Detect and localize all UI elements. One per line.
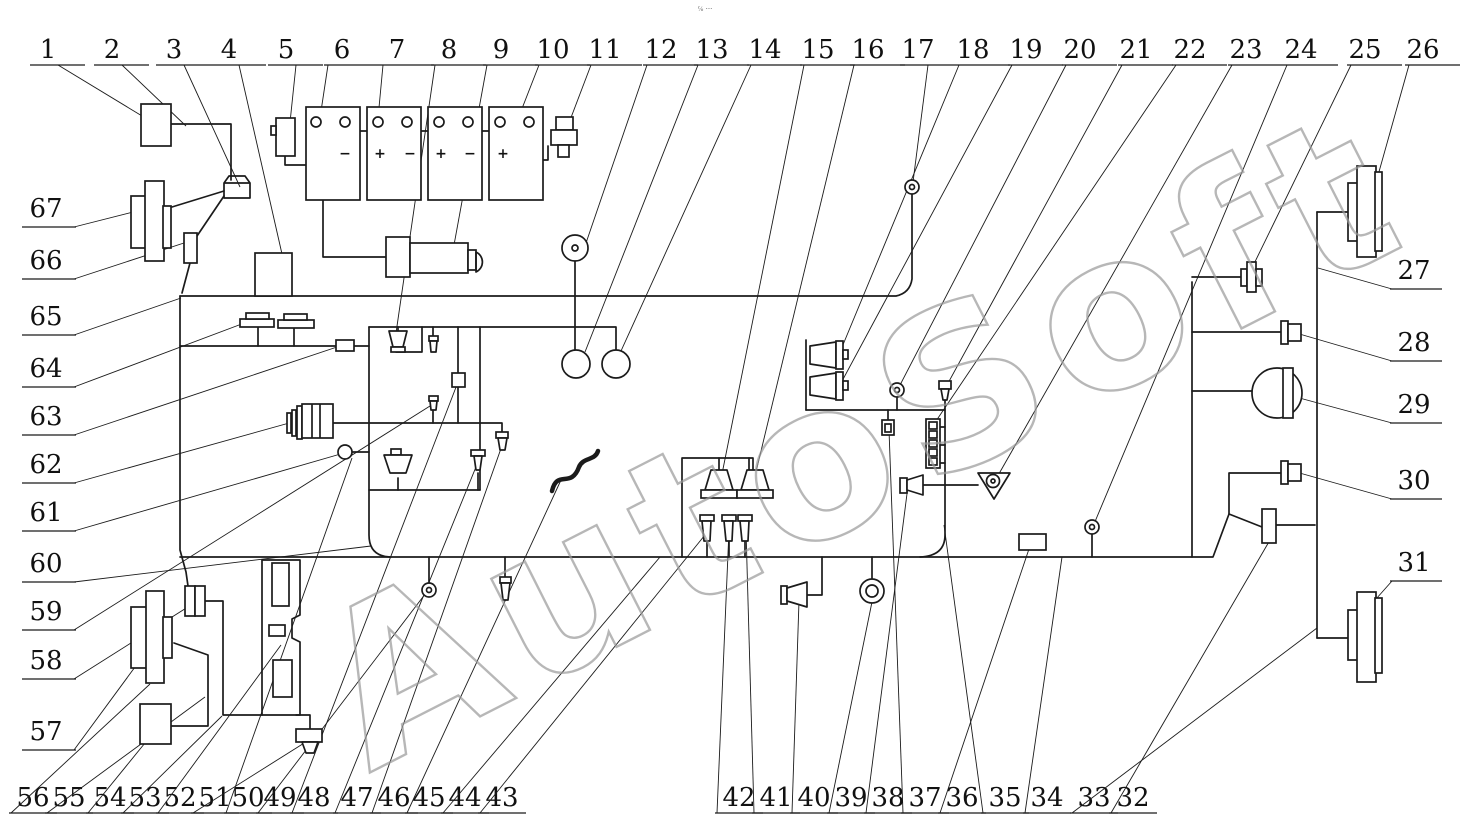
callout-number-51: 51 xyxy=(198,783,231,813)
leader-line-29 xyxy=(1292,396,1392,423)
callout-number-13: 13 xyxy=(695,35,728,65)
speaker-31 xyxy=(1348,592,1382,682)
wire-control-box xyxy=(171,124,231,180)
callout-number-29: 29 xyxy=(1397,390,1430,420)
box-54 xyxy=(140,704,171,744)
callout-number-5: 5 xyxy=(278,35,295,65)
leader-line-14 xyxy=(621,65,751,351)
callout-number-63: 63 xyxy=(29,402,62,432)
callout-number-16: 16 xyxy=(851,35,884,65)
callout-number-38: 38 xyxy=(871,783,904,813)
wire-horn51 xyxy=(296,715,310,729)
callout-number-64: 64 xyxy=(29,354,62,384)
battery-polarity-label: − xyxy=(404,146,416,162)
relay-box-36 xyxy=(1019,534,1046,550)
callout-number-66: 66 xyxy=(29,246,62,276)
plug-46 xyxy=(496,432,508,450)
wire-speaker57 xyxy=(205,601,262,715)
battery-polarity-label: − xyxy=(464,146,476,162)
horn-button-12 xyxy=(562,235,588,261)
callout-number-49: 49 xyxy=(263,783,296,813)
wiper-motor-62 xyxy=(287,404,333,439)
gauge-circle-13 xyxy=(562,350,590,378)
leader-line-1 xyxy=(58,65,152,122)
battery-1: − xyxy=(306,107,360,200)
leader-line-32 xyxy=(1111,540,1270,813)
leader-line-33 xyxy=(1072,628,1317,813)
leader-line-4 xyxy=(239,65,282,254)
leader-line-40 xyxy=(792,601,799,813)
callout-number-53: 53 xyxy=(128,783,161,813)
callout-number-25: 25 xyxy=(1348,35,1381,65)
callout-number-57: 57 xyxy=(29,717,62,747)
battery-4: + xyxy=(489,107,543,200)
callout-number-34: 34 xyxy=(1030,783,1063,813)
callout-number-62: 62 xyxy=(29,450,62,480)
leader-line-36 xyxy=(940,543,1031,813)
battery-polarity-label: + xyxy=(497,146,509,162)
header-artifact-text: ℅ ··· xyxy=(698,5,713,13)
callout-number-28: 28 xyxy=(1397,328,1430,358)
callout-number-59: 59 xyxy=(29,597,62,627)
leader-line-13 xyxy=(585,65,698,352)
callout-number-36: 36 xyxy=(945,783,978,813)
wiring-diagram: ℅ ···12345678910111213141516171819202122… xyxy=(0,0,1460,836)
diagram-page: ℅ ···12345678910111213141516171819202122… xyxy=(0,0,1460,836)
wire-speaker-cap xyxy=(172,191,224,207)
leader-line-35 xyxy=(944,525,983,813)
callout-number-37: 37 xyxy=(908,783,941,813)
flasher-relay-52 xyxy=(262,560,300,715)
wire-cap-connector xyxy=(197,196,224,236)
connector-66 xyxy=(184,233,197,263)
callout-number-58: 58 xyxy=(29,646,62,676)
fuse-holder-64 xyxy=(240,313,274,327)
callout-number-10: 10 xyxy=(536,35,569,65)
callout-number-48: 48 xyxy=(297,783,330,813)
callout-number-55: 55 xyxy=(52,783,85,813)
callout-number-18: 18 xyxy=(956,35,989,65)
connector-11 xyxy=(551,117,577,157)
relay-square-48 xyxy=(452,373,465,387)
callout-number-8: 8 xyxy=(441,35,458,65)
horn-51 xyxy=(296,729,322,753)
leader-line-17 xyxy=(913,65,928,182)
callout-number-40: 40 xyxy=(797,783,830,813)
callout-number-19: 19 xyxy=(1009,35,1042,65)
callout-number-2: 2 xyxy=(104,35,121,65)
leader-line-62 xyxy=(74,420,300,483)
callout-number-31: 31 xyxy=(1397,548,1430,578)
relay-cap-3 xyxy=(224,176,250,198)
callout-number-20: 20 xyxy=(1063,35,1096,65)
callout-number-21: 21 xyxy=(1119,35,1152,65)
callout-number-17: 17 xyxy=(901,35,934,65)
callout-number-15: 15 xyxy=(801,35,834,65)
callout-number-67: 67 xyxy=(29,194,62,224)
fuse-holder-63 xyxy=(278,314,314,328)
switch-5 xyxy=(271,118,295,156)
callout-number-11: 11 xyxy=(588,35,621,65)
callout-number-7: 7 xyxy=(389,35,406,65)
starter-motor-9 xyxy=(386,237,482,277)
callout-number-24: 24 xyxy=(1284,35,1317,65)
battery-2: +− xyxy=(367,107,421,200)
leader-line-34 xyxy=(1025,557,1062,813)
gauge-circle-14 xyxy=(602,350,630,378)
left-edge xyxy=(180,296,188,586)
callout-number-56: 56 xyxy=(16,783,49,813)
battery-polarity-label: + xyxy=(374,146,386,162)
connector-58 xyxy=(185,586,205,616)
callout-number-32: 32 xyxy=(1116,783,1149,813)
callout-number-35: 35 xyxy=(988,783,1021,813)
bus-right-branch xyxy=(1229,514,1262,527)
wire-battery1-starter xyxy=(323,200,386,257)
relay-63b xyxy=(336,340,354,351)
flat-lamp-50 xyxy=(384,449,412,473)
battery-polarity-label: + xyxy=(435,146,447,162)
leader-line-30 xyxy=(1296,472,1392,499)
callout-number-43: 43 xyxy=(485,783,518,813)
callout-number-39: 39 xyxy=(834,783,867,813)
callout-number-6: 6 xyxy=(334,35,351,65)
leader-line-39 xyxy=(829,597,873,813)
speaker-57 xyxy=(131,591,172,683)
callout-number-42: 42 xyxy=(722,783,755,813)
clip-circle-60 xyxy=(338,445,352,459)
callout-number-41: 41 xyxy=(759,783,792,813)
battery-polarity-label: − xyxy=(339,146,351,162)
callout-number-14: 14 xyxy=(748,35,781,65)
connector-32 xyxy=(1262,509,1276,543)
wire-conn66-corner xyxy=(182,263,190,293)
callout-number-60: 60 xyxy=(29,549,62,579)
callout-number-22: 22 xyxy=(1173,35,1206,65)
callout-number-61: 61 xyxy=(29,498,62,528)
ground-bolt-24 xyxy=(1085,520,1099,534)
plug-mid xyxy=(429,396,438,410)
callout-number-4: 4 xyxy=(221,35,238,65)
leader-line-12 xyxy=(586,65,647,243)
battery-3: +− xyxy=(428,107,482,200)
stems-fusecomp xyxy=(258,327,294,346)
control-box-1 xyxy=(141,104,171,146)
plug-30 xyxy=(1281,461,1301,484)
ring-39 xyxy=(860,579,884,603)
ground-bolt-17 xyxy=(905,180,919,194)
callout-number-54: 54 xyxy=(93,783,126,813)
callout-number-50: 50 xyxy=(231,783,264,813)
plug-47 xyxy=(471,450,485,470)
lamp-8 xyxy=(389,331,407,352)
callout-number-23: 23 xyxy=(1229,35,1262,65)
plug-upper xyxy=(429,336,438,352)
leader-line-64 xyxy=(74,322,247,387)
leader-line-65 xyxy=(74,298,181,335)
callout-number-12: 12 xyxy=(644,35,677,65)
callout-number-30: 30 xyxy=(1397,466,1430,496)
relay-box-4 xyxy=(255,253,292,296)
callout-number-3: 3 xyxy=(166,35,183,65)
callout-number-9: 9 xyxy=(493,35,510,65)
callout-number-52: 52 xyxy=(163,783,196,813)
wire-423 xyxy=(333,423,502,432)
leader-line-61 xyxy=(74,453,344,531)
callout-number-65: 65 xyxy=(29,302,62,332)
callout-number-1: 1 xyxy=(40,35,57,65)
callout-number-26: 26 xyxy=(1406,35,1439,65)
wire-box54 xyxy=(171,643,208,726)
